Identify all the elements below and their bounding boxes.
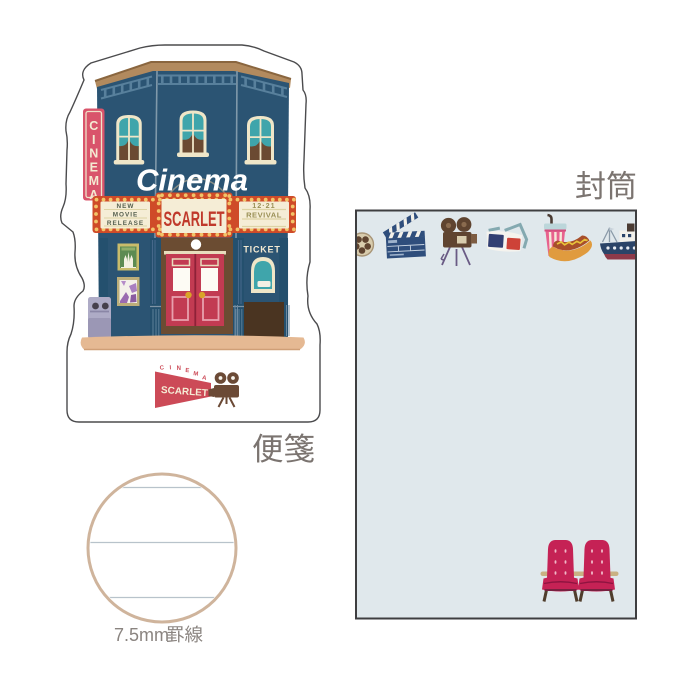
- svg-text:M: M: [193, 371, 199, 378]
- svg-text:E: E: [90, 160, 98, 174]
- svg-text:12·21: 12·21: [252, 201, 275, 210]
- svg-text:Cinema: Cinema: [136, 163, 248, 198]
- svg-text:7.5mm: 7.5mm: [114, 625, 169, 645]
- svg-text:N: N: [89, 147, 98, 161]
- svg-text:MOVIE: MOVIE: [113, 211, 139, 218]
- svg-text:REVIVAL: REVIVAL: [246, 211, 282, 220]
- svg-text:C: C: [89, 119, 98, 133]
- svg-text:M: M: [89, 174, 99, 188]
- svg-text:E: E: [185, 368, 189, 374]
- svg-text:I: I: [92, 133, 95, 147]
- svg-text:TICKET: TICKET: [243, 245, 280, 255]
- svg-text:SCARLET: SCARLET: [164, 208, 225, 231]
- svg-text:N: N: [177, 366, 181, 372]
